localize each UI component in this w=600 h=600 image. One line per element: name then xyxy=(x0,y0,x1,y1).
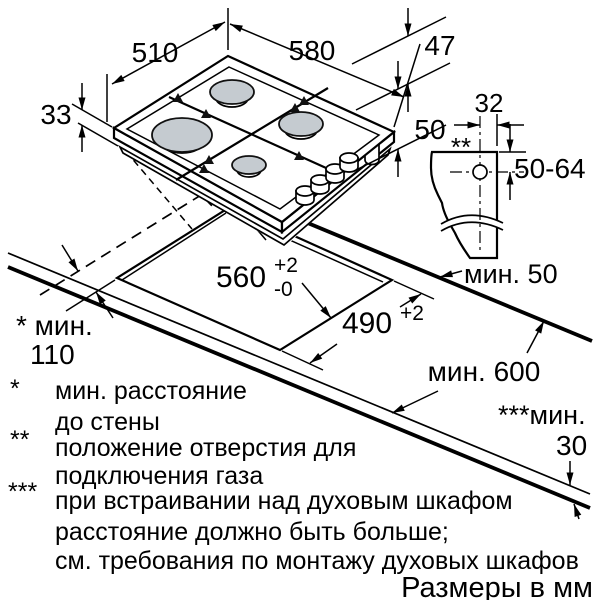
footnote-1-marker: * xyxy=(10,375,20,403)
dim-min30-label-1: ***мин. xyxy=(498,400,586,430)
footnote-3-marker: *** xyxy=(8,478,37,506)
dim-560-tol-plus: +2 xyxy=(274,254,298,277)
dim-min600-label: мин. 600 xyxy=(428,356,541,387)
gas-hole-marker: ** xyxy=(451,132,471,162)
hob-isometric xyxy=(112,53,396,247)
dim-min30-arrow-lower xyxy=(574,504,579,519)
dim-min110-label-1: * мин. xyxy=(16,310,93,341)
units-note: Размеры в мм xyxy=(401,572,593,600)
gas-hole xyxy=(473,165,487,179)
dim-min110-label-2: 110 xyxy=(30,339,75,370)
dim-490-ext-right xyxy=(394,281,434,299)
footnote-2-line-2: подключения газа xyxy=(55,462,263,490)
dim-560-label: 560 xyxy=(216,261,266,294)
dim-min50-arrow xyxy=(440,271,462,277)
dim-min600-arrow-right xyxy=(527,321,544,353)
dim-490-label: 490 xyxy=(342,307,392,340)
dim-490-ext-left xyxy=(282,351,323,370)
footnote-1-line-1: мин. расстояние xyxy=(55,377,247,405)
hob-installation-diagram: 560 +2 -0 490 +2 мин. 600 мин. 50 * мин.… xyxy=(0,0,600,600)
dim-560-tol-minus: -0 xyxy=(274,278,293,301)
side-panel-profile xyxy=(431,152,497,258)
gas-connection-detail: ** 32 50-64 xyxy=(431,88,586,258)
footnote-3-line-2: расстояние должно быть больше; xyxy=(55,518,449,546)
dim-50-64: 50-64 xyxy=(499,124,586,200)
installation-diagram-page: 560 +2 -0 490 +2 мин. 600 мин. 50 * мин.… xyxy=(0,0,600,600)
dim-32-label: 32 xyxy=(475,88,504,118)
dim-47-label: 47 xyxy=(424,30,455,61)
dim-min-110: * мин. 110 xyxy=(16,245,115,370)
footnote-2-line-1: положение отверстия для xyxy=(55,434,356,462)
burner-left-large xyxy=(152,118,212,153)
dim-min50-label: мин. 50 xyxy=(464,259,558,289)
dim-min600-arrow-left xyxy=(392,391,438,413)
footnote-2-marker: ** xyxy=(10,426,30,454)
dim-490-arrow-lower xyxy=(310,344,337,363)
dim-33-label: 33 xyxy=(40,99,71,130)
footnote-1-line-2: до стены xyxy=(55,408,160,436)
footnote-3-line-1: при встраивании над духовым шкафом xyxy=(55,487,513,515)
footnote-3-line-3: см. требования по монтажу духовых шкафов xyxy=(55,547,579,575)
dim-min30-label-2: 30 xyxy=(556,430,587,461)
dim-490-tol-plus: +2 xyxy=(400,302,424,325)
dim-5064-label: 50-64 xyxy=(514,153,586,184)
dim-580-label: 580 xyxy=(289,35,336,66)
dim-47-ext-lower xyxy=(356,63,450,110)
dim-min110-arrow-upper xyxy=(62,245,78,271)
footnotes: * мин. расстояние до стены ** положение … xyxy=(8,375,579,575)
dim-510-label: 510 xyxy=(132,37,179,68)
dim-50-label: 50 xyxy=(414,114,445,145)
